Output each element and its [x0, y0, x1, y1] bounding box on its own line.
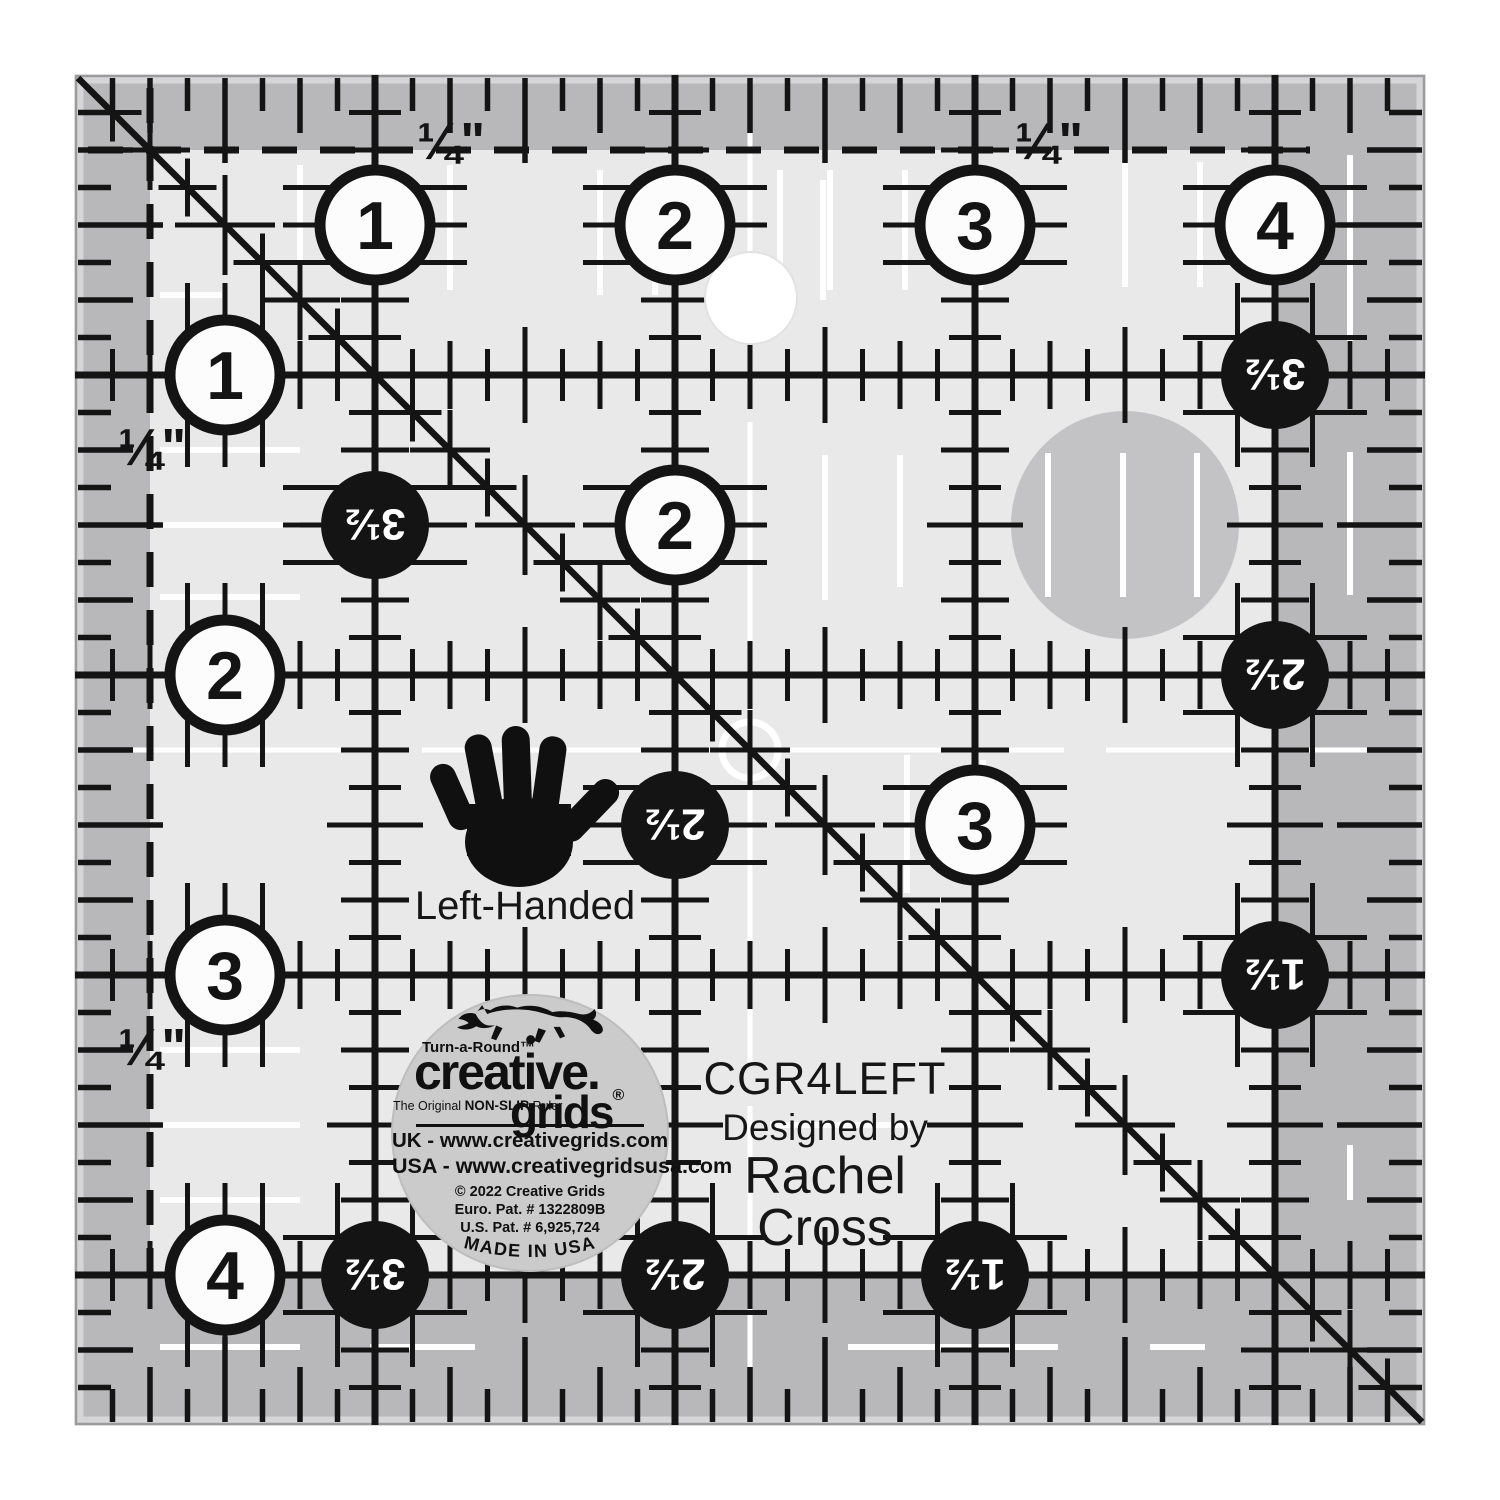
- measure-circle-label: 3: [956, 188, 994, 264]
- svg-text:MADE IN USA: MADE IN USA: [462, 1232, 598, 1261]
- measure-circle-label: 3½: [344, 499, 405, 548]
- logo-euro-patent: Euro. Pat. # 1322809B: [392, 1202, 668, 1218]
- measure-circle-label: 1: [206, 338, 244, 414]
- quarter-inch-label: ¼": [118, 1019, 186, 1077]
- quarter-inch-label: ¼": [1015, 113, 1083, 171]
- measure-circle-label: 4: [206, 1238, 244, 1314]
- quarter-inch-label: ¼": [417, 113, 485, 171]
- measure-circle-label: 2½: [644, 1249, 705, 1298]
- left-handed-label: Left-Handed: [395, 884, 655, 929]
- logo-copyright: © 2022 Creative Grids: [392, 1184, 668, 1200]
- measure-circle-label: 3: [206, 938, 244, 1014]
- designed-by-text: Designed by: [672, 1109, 978, 1146]
- measure-circle-label: 3½: [1244, 349, 1305, 398]
- logo-uk-url: UK - www.creativegrids.com: [392, 1129, 668, 1153]
- quarter-inch-label: ¼": [118, 419, 186, 477]
- measure-circle-label: 3½: [344, 1249, 405, 1298]
- measure-circle-label: 4: [1256, 188, 1294, 264]
- ruler-product-image: 12341234233½2½1½3½2½3½2½1½¼"¼"¼"¼" Turn-…: [0, 0, 1500, 1500]
- logo-tagline: The Original NON-SLIP Ruler: [393, 1098, 562, 1113]
- designer-name: Rachel Cross: [672, 1150, 978, 1254]
- measure-circle-label: 2: [206, 638, 244, 714]
- creative-grids-logo-badge: Turn-a-Round™ creative. grids® The Origi…: [392, 995, 668, 1271]
- logo-divider: [416, 1124, 644, 1127]
- measure-circle-label: 1½: [944, 1249, 1005, 1298]
- product-info-block: CGR4LEFT Designed by Rachel Cross: [672, 1056, 978, 1254]
- measure-circle-label: 2: [656, 488, 694, 564]
- registered-mark: ®: [612, 1087, 622, 1104]
- quilting-ruler-graphic: 12341234233½2½1½3½2½3½2½1½¼"¼"¼"¼": [0, 0, 1500, 1500]
- product-sku: CGR4LEFT: [672, 1056, 978, 1101]
- measure-circle-label: 1½: [1244, 949, 1305, 998]
- measure-circle-label: 2: [656, 188, 694, 264]
- measure-circle-label: 3: [956, 788, 994, 864]
- measure-circle-label: 2½: [1244, 649, 1305, 698]
- measure-circle-label: 1: [356, 188, 394, 264]
- logo-made-in-usa: MADE IN USA: [410, 1231, 650, 1277]
- logo-usa-url: USA - www.creativegridsusa.com: [392, 1154, 668, 1179]
- measure-circle-label: 2½: [644, 799, 705, 848]
